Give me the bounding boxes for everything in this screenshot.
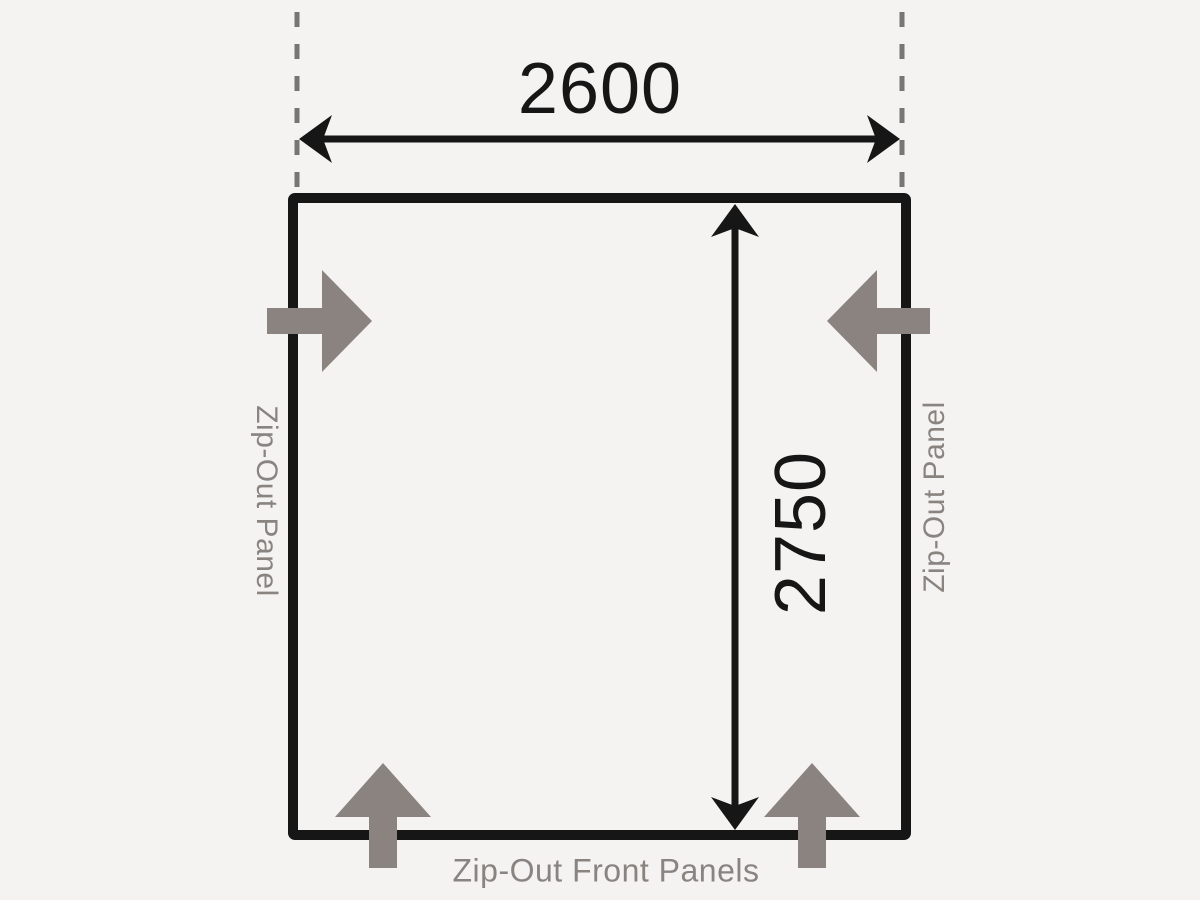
awning-floorplan-diagram: 2600 2750 Zip-Out Panel Zip-Out Panel Zi… xyxy=(0,0,1200,900)
floorplan-canvas xyxy=(0,0,1200,900)
width-dimension-value: 2600 xyxy=(518,48,682,130)
zip-out-arrow-right-icon xyxy=(827,270,930,372)
zip-out-panel-label-right: Zip-Out Panel xyxy=(918,401,952,593)
zip-out-arrow-bottom-left-icon xyxy=(335,763,431,868)
depth-dimension-arrow xyxy=(711,204,759,830)
zip-out-arrow-left-icon xyxy=(267,270,372,372)
zip-out-panel-label-left: Zip-Out Panel xyxy=(249,405,283,597)
zip-out-front-panels-label: Zip-Out Front Panels xyxy=(453,853,760,890)
zip-out-arrow-bottom-right-icon xyxy=(764,763,860,868)
depth-dimension-value: 2750 xyxy=(760,451,842,615)
